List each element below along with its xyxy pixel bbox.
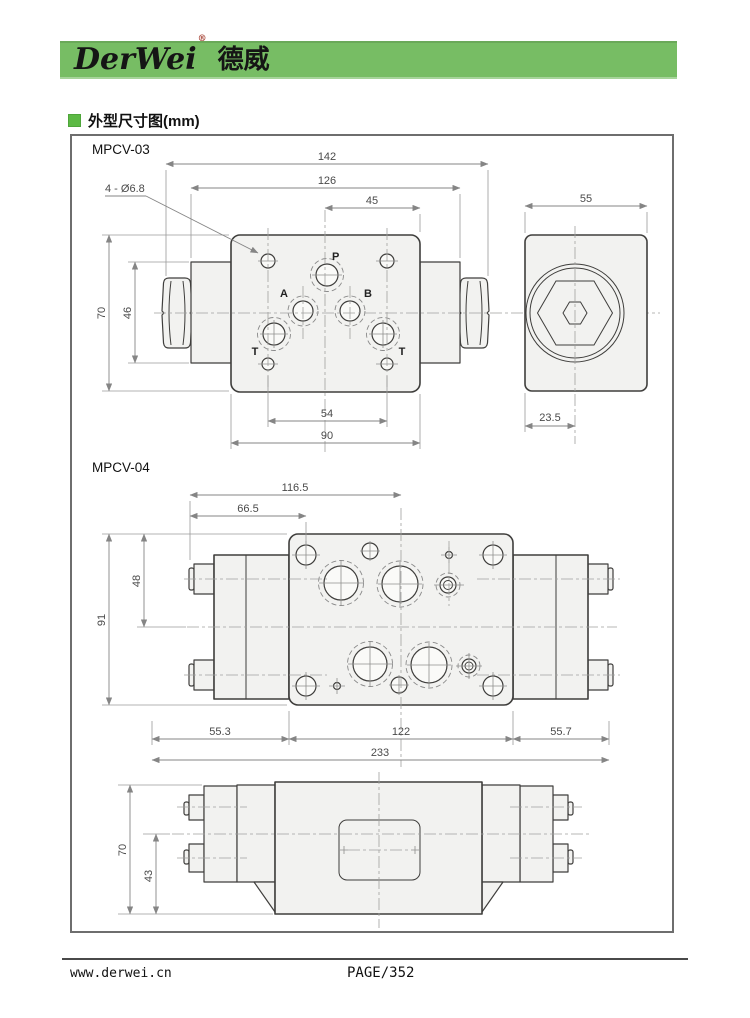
port-label-b: B [364,288,372,300]
dim-233: 233 [371,747,389,759]
dim-55-7: 55.7 [550,726,571,738]
dim-54: 54 [321,408,333,420]
dim-23-5: 23.5 [539,412,560,424]
dim-116-5: 116.5 [282,482,309,494]
drawing-frame: MPCV-03 [70,134,674,933]
brand-logo-chinese: 德威 [218,47,270,73]
dim-126: 126 [318,175,336,187]
mpcv03-drawing: MPCV-03 [92,142,660,452]
brand-banner: DerWei® 德威 [60,41,677,79]
mpcv04-side-view [172,772,592,928]
brand-logo-latin: DerWei® [74,45,206,75]
dimension-drawings: MPCV-03 [72,136,672,931]
dim-70: 70 [96,307,108,319]
dim-91: 91 [96,614,108,626]
section-heading: 外型尺寸图(mm) [68,110,200,131]
dim-mount-holes: 4 - Ø6.8 [105,183,145,195]
footer-divider [62,958,688,960]
section-bullet-icon [68,114,81,127]
footer-page-number: PAGE/352 [347,965,414,981]
dim-43: 43 [143,870,155,882]
port-label-a: A [280,288,288,300]
dim-55: 55 [580,193,592,205]
dim-48: 48 [131,575,143,587]
port-label-p: P [332,251,339,263]
port-label-t1: T [252,346,259,358]
dim-46: 46 [122,307,134,319]
port-label-t2: T [399,346,406,358]
mpcv03-label: MPCV-03 [92,142,150,157]
dim-70-side: 70 [117,844,129,856]
dim-55-3: 55.3 [209,726,230,738]
registered-mark-icon: ® [198,34,207,44]
section-title: 外型尺寸图(mm) [88,110,200,131]
dim-142: 142 [318,151,336,163]
dim-45: 45 [366,195,378,207]
mpcv04-drawing: MPCV-04 [92,460,620,928]
footer-website: www.derwei.cn [70,966,172,981]
dim-90: 90 [321,430,333,442]
dim-122: 122 [392,726,410,738]
mpcv04-label: MPCV-04 [92,460,150,475]
dim-66-5: 66.5 [237,503,258,515]
catalog-page: DerWei® 德威 外型尺寸图(mm) MPCV-03 [0,0,750,1018]
